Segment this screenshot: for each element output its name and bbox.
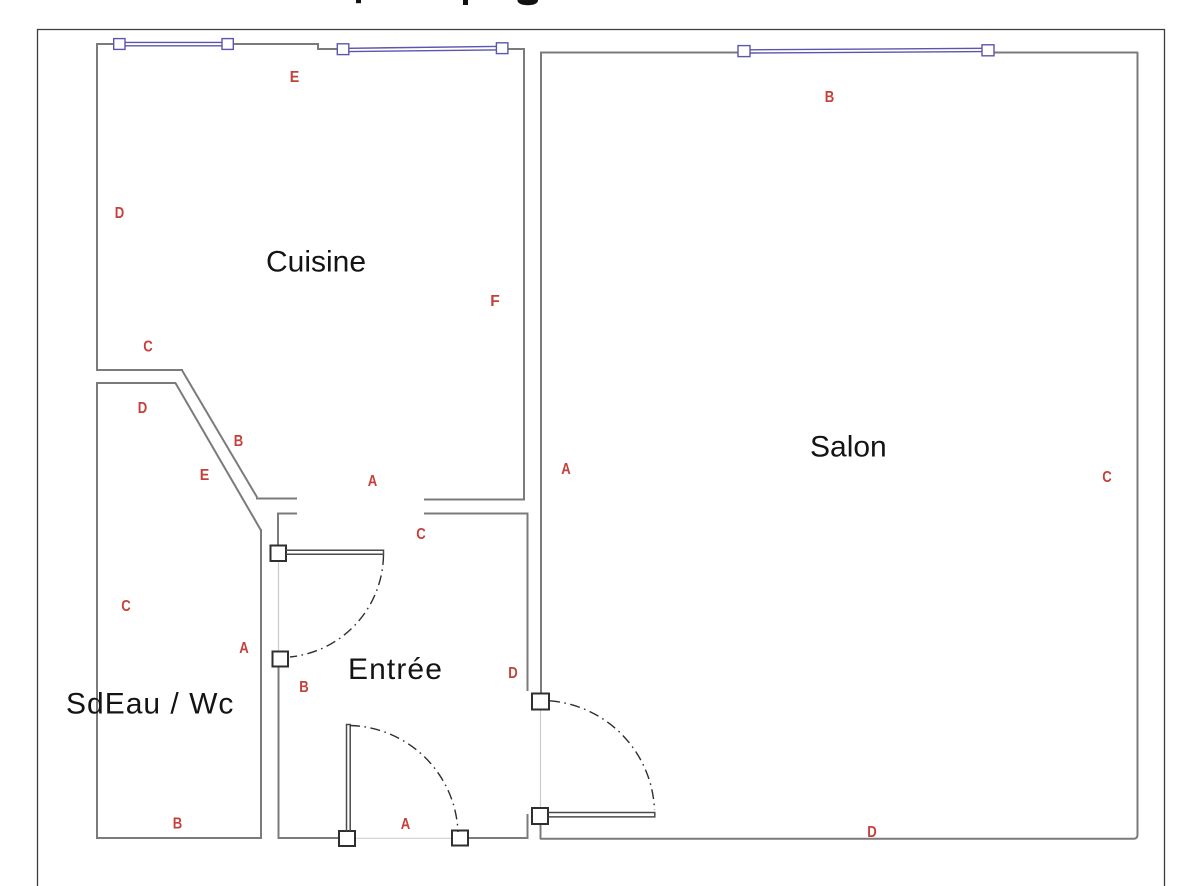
svg-text:B: B — [299, 679, 309, 696]
svg-text:D: D — [508, 665, 518, 682]
svg-text:A: A — [401, 816, 411, 833]
svg-text:F: F — [490, 293, 500, 310]
svg-text:D: D — [115, 205, 125, 222]
svg-text:E: E — [200, 467, 210, 484]
svg-text:A: A — [561, 461, 571, 478]
svg-text:Cuisine: Cuisine — [266, 246, 366, 279]
svg-text:C: C — [121, 598, 131, 615]
svg-text:D: D — [867, 824, 877, 841]
svg-text:C: C — [416, 526, 426, 543]
svg-text:C: C — [1102, 469, 1112, 486]
svg-text:A: A — [239, 640, 249, 657]
svg-text:A: A — [368, 473, 378, 490]
svg-text:B: B — [825, 89, 835, 106]
svg-text:Entrée: Entrée — [348, 653, 443, 686]
svg-text:Salon: Salon — [810, 431, 887, 464]
svg-text:B: B — [234, 433, 244, 450]
svg-text:C: C — [143, 339, 153, 356]
svg-text:E: E — [290, 69, 300, 86]
svg-text:B: B — [173, 816, 183, 833]
svg-text:D: D — [138, 400, 148, 417]
svg-text:SdEau / Wc: SdEau / Wc — [66, 688, 234, 721]
